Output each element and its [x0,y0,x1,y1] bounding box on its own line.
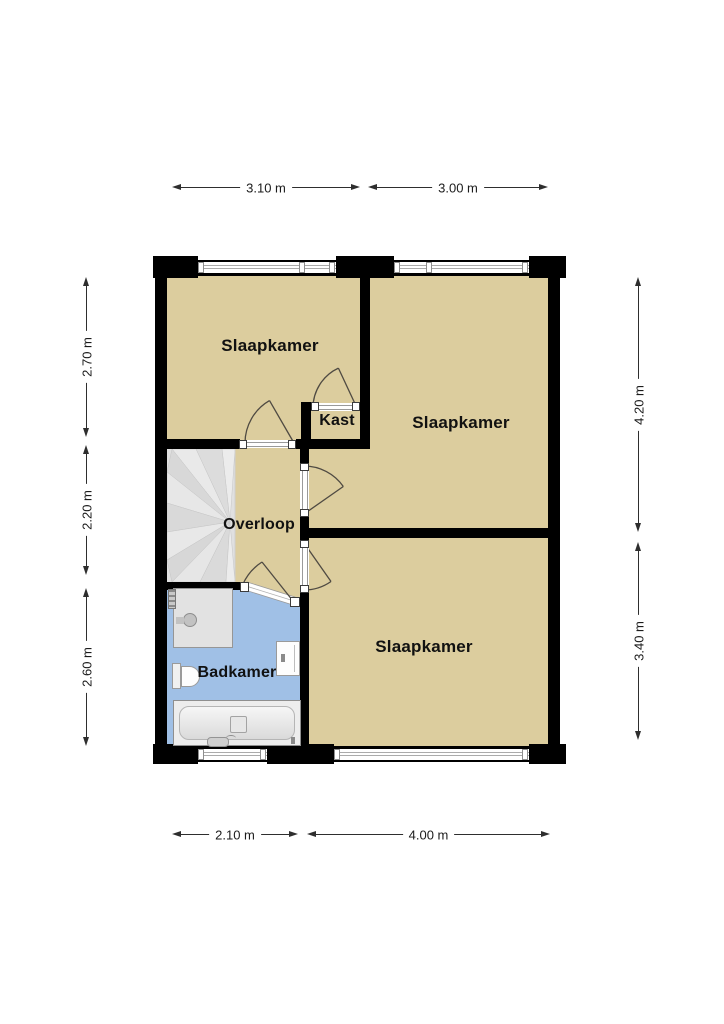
window-mullion [522,749,528,760]
wall-hall-east-1 [300,449,309,463]
wall-pier-bottom-left [153,744,198,764]
bathtub-spout-icon [226,735,236,741]
wall-between-right-bedrooms [309,528,548,538]
arrow-down-icon [635,731,641,740]
arrow-down-icon [83,566,89,575]
bathtub-icon [173,700,301,746]
arrow-down-icon [83,428,89,437]
door-jamb [300,585,309,593]
dimension-label: 3.00 m [432,180,484,195]
toilet-cistern [172,663,181,689]
wall-closet-west [301,402,311,449]
door-jamb [311,402,319,411]
dimension-label: 2.70 m [79,331,94,383]
window-top-right [394,262,529,273]
window-mullion [394,262,400,273]
window-mullion [522,262,528,273]
room-label-slaapkamer-left: Slaapkamer [221,336,318,356]
shower-head-icon [176,617,184,624]
arrow-right-icon [289,831,298,837]
wall-between-bedrooms [360,276,370,449]
dimension-left-1: 2.70 m [82,277,91,437]
wall-bathroom-east [300,605,309,746]
dimension-bottom-2: 4.00 m [307,830,550,839]
window-mullion [334,749,340,760]
room-label-slaapkamer-right: Slaapkamer [412,413,509,433]
arrow-right-icon [351,184,360,190]
dimension-top-1: 3.10 m [172,183,360,192]
wall-pier-top-middle [336,256,394,278]
door-jamb [300,509,309,517]
bathtub-drain-icon [230,716,247,733]
door-jamb [300,463,309,471]
dimension-label: 4.00 m [403,827,455,842]
window-mullion [329,262,335,273]
wall-pier-bottom-middle [267,744,334,764]
door-jamb [290,597,300,607]
dimension-label: 4.20 m [631,379,646,431]
window-mullion [426,262,432,273]
door-jamb [352,402,360,411]
washbasin-icon [276,641,300,676]
dimension-left-3: 2.60 m [82,588,91,746]
dimension-right-2: 3.40 m [634,542,643,740]
room-label-slaapkamer-bottom: Slaapkamer [375,637,472,657]
window-bedroom-bottom [334,749,529,760]
dimension-label: 2.60 m [79,641,94,693]
wall-outer-right [548,260,560,762]
window-mullion [198,262,204,273]
arrow-right-icon [541,831,550,837]
window-mullion [260,749,266,760]
window-bathroom [198,749,267,760]
door-jamb [239,440,247,449]
shower-tray [173,588,233,648]
room-label-badkamer: Badkamer [198,664,277,682]
dimension-top-2: 3.00 m [368,183,548,192]
room-label-overloop: Overloop [223,516,295,534]
dimension-label: 3.40 m [631,615,646,667]
shower-drain-icon [183,613,197,627]
dimension-label: 3.10 m [240,180,292,195]
floorplan-canvas: Slaapkamer Slaapkamer Slaapkamer Kast Ov… [0,0,724,1024]
wall-pier-bottom-right [529,744,566,764]
wall-outer-left [155,260,167,762]
window-top-left [198,262,336,273]
window-mullion [299,262,305,273]
door-jamb [288,440,296,449]
wall-pier-top-left [153,256,198,278]
dimension-label: 2.20 m [79,484,94,536]
dimension-bottom-1: 2.10 m [172,830,298,839]
wall-pier-top-right [529,256,566,278]
room-label-kast: Kast [319,412,354,430]
arrow-down-icon [635,523,641,532]
bathtub-overflow-icon [291,737,295,744]
wall-hall-east-2 [300,517,309,540]
arrow-right-icon [539,184,548,190]
dimension-left-2: 2.20 m [82,445,91,575]
arrow-down-icon [83,737,89,746]
dimension-label: 2.10 m [209,827,261,842]
window-mullion [198,749,204,760]
wall-bedroom-left-south [167,439,240,449]
radiator-icon [168,589,176,609]
door-jamb [240,582,249,592]
dimension-right-1: 4.20 m [634,277,643,532]
washbasin-tap-icon [281,654,285,662]
door-jamb [300,540,309,548]
